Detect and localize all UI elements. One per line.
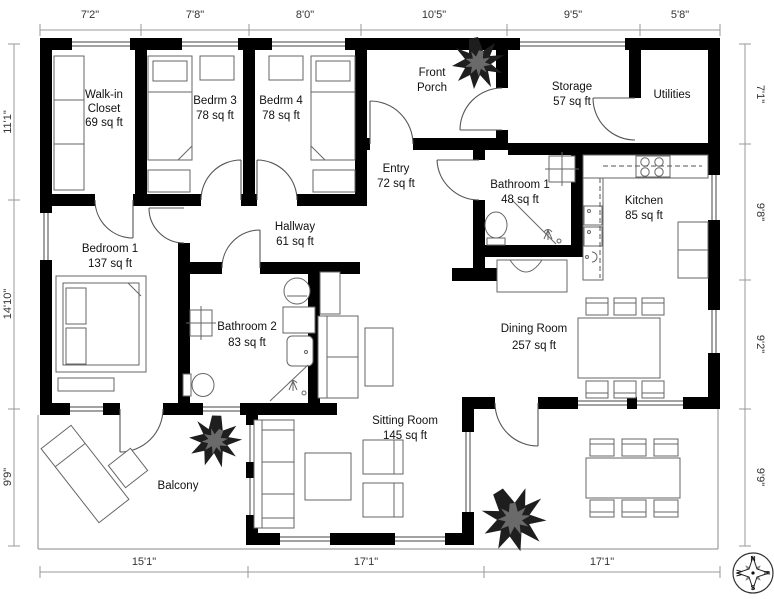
door-terrace bbox=[495, 403, 538, 446]
window bbox=[578, 397, 627, 409]
pillow bbox=[66, 328, 86, 364]
bedroom1-furniture bbox=[56, 276, 146, 391]
nightstand bbox=[269, 56, 303, 80]
wall-storage-bottom bbox=[508, 143, 720, 155]
label-bathroom1: Bathroom 1 bbox=[490, 179, 549, 191]
chair bbox=[590, 439, 614, 456]
wall-band-1 bbox=[40, 194, 95, 206]
wall-dining-corner-stub bbox=[473, 257, 485, 268]
dim-top-4: 10'5" bbox=[422, 9, 446, 21]
wall-storage-utilities bbox=[629, 50, 641, 98]
label-dining-room: Dining Room bbox=[501, 323, 567, 335]
shower-icon bbox=[289, 381, 297, 392]
svg-text:Closet: Closet bbox=[88, 103, 121, 115]
dining-table bbox=[578, 318, 660, 378]
label-walk-in-closet-area: 69 sq ft bbox=[85, 117, 124, 129]
counter bbox=[283, 307, 315, 333]
toilet-bowl bbox=[485, 212, 507, 238]
dining-furniture bbox=[318, 272, 664, 398]
dim-top-3: 8'0" bbox=[296, 9, 314, 21]
window bbox=[203, 403, 240, 415]
sink bbox=[584, 227, 602, 246]
wall-dining-corner bbox=[452, 268, 500, 281]
compass-rose: N E S W bbox=[733, 553, 773, 593]
wall-bed4-right bbox=[355, 50, 367, 206]
window bbox=[395, 533, 445, 545]
chair bbox=[622, 439, 646, 456]
sink bbox=[287, 336, 313, 366]
floor-plan-drawing: 7'2" 7'8" 8'0" 10'5" 9'5" 5'8" 11'1" 14'… bbox=[0, 0, 774, 599]
fridge bbox=[678, 222, 708, 250]
dim-left-3: 9'9" bbox=[2, 468, 14, 486]
outdoor-table bbox=[586, 458, 680, 498]
chair bbox=[614, 298, 636, 315]
plant-icon bbox=[472, 477, 555, 560]
door-bathroom1 bbox=[437, 160, 479, 200]
wall-band-2 bbox=[133, 194, 201, 206]
dim-right-4: 9'9" bbox=[754, 468, 766, 486]
balcony-furniture bbox=[41, 425, 148, 522]
label-bedroom1-area: 137 sq ft bbox=[88, 258, 133, 270]
floor-plan-page: 7'2" 7'8" 8'0" 10'5" 9'5" 5'8" 11'1" 14'… bbox=[0, 0, 774, 599]
dim-right-1: 7'1" bbox=[754, 85, 766, 103]
door-bedrm4 bbox=[257, 160, 297, 200]
toilet-tank bbox=[487, 238, 505, 245]
door-front bbox=[370, 101, 413, 144]
window bbox=[70, 403, 103, 415]
compass-west: W bbox=[737, 569, 744, 576]
dim-top-2: 7'8" bbox=[186, 9, 204, 21]
window bbox=[72, 38, 130, 50]
label-walk-in-closet: Walk-in bbox=[85, 89, 123, 101]
terrace-furniture bbox=[586, 439, 680, 517]
label-entry: Entry bbox=[383, 163, 410, 175]
wall-bed3-bed4 bbox=[243, 50, 255, 194]
dim-bottom-1: 15'1" bbox=[132, 556, 156, 568]
window bbox=[462, 432, 474, 512]
bench bbox=[58, 378, 114, 391]
closet-shelves bbox=[54, 56, 84, 190]
chair bbox=[642, 381, 664, 398]
window bbox=[708, 310, 720, 353]
window bbox=[520, 38, 625, 50]
label-entry-area: 72 sq ft bbox=[377, 178, 416, 190]
label-hallway: Hallway bbox=[275, 221, 316, 233]
window bbox=[272, 38, 345, 50]
door-balcony bbox=[120, 409, 163, 452]
label-front-porch: Front bbox=[419, 67, 447, 79]
compass-south: S bbox=[751, 585, 756, 592]
compass-east: E bbox=[763, 571, 770, 576]
dim-top-5: 9'5" bbox=[564, 9, 582, 21]
window bbox=[40, 213, 52, 260]
ruler-right: 7'1" 9'8" 9'2" 9'9" bbox=[739, 44, 766, 546]
toilet-bowl bbox=[192, 374, 214, 397]
chair bbox=[654, 439, 678, 456]
window bbox=[280, 533, 330, 545]
compass-north: N bbox=[750, 556, 755, 563]
label-bedrm3: Bedrm 3 bbox=[193, 95, 236, 107]
sitting-room-furniture bbox=[254, 420, 403, 528]
door-utilities bbox=[593, 98, 635, 140]
window bbox=[637, 397, 683, 409]
chair bbox=[642, 298, 664, 315]
dim-left-1: 11'1" bbox=[2, 110, 14, 134]
label-storage-area: 57 sq ft bbox=[553, 96, 592, 108]
tv-stand bbox=[365, 328, 393, 386]
ruler-left: 11'1" 14'10" 9'9" bbox=[2, 44, 20, 546]
armchair bbox=[363, 483, 403, 517]
label-hallway-area: 61 sq ft bbox=[276, 236, 315, 248]
label-bathroom2-area: 83 sq ft bbox=[228, 337, 267, 349]
plant-icon bbox=[183, 409, 246, 472]
dim-bottom-2: 17'1" bbox=[354, 556, 378, 568]
side-cabinet bbox=[320, 272, 340, 314]
ruler-top: 7'2" 7'8" 8'0" 10'5" 9'5" 5'8" bbox=[40, 9, 720, 36]
pillow bbox=[316, 61, 350, 81]
label-kitchen: Kitchen bbox=[625, 195, 663, 207]
label-bedrm3-area: 78 sq ft bbox=[196, 110, 235, 122]
armchair bbox=[363, 440, 403, 474]
label-kitchen-area: 85 sq ft bbox=[625, 210, 664, 222]
dim-bottom-3: 17'1" bbox=[590, 556, 614, 568]
label-utilities: Utilities bbox=[653, 89, 690, 101]
cabinet bbox=[678, 250, 708, 278]
pillow bbox=[66, 288, 86, 324]
wall-outer-right bbox=[708, 38, 720, 409]
wall-bath1-bottom bbox=[473, 245, 583, 257]
dim-right-3: 9'2" bbox=[754, 335, 766, 353]
coffee-table bbox=[305, 453, 351, 500]
dim-left-2: 14'10" bbox=[2, 289, 14, 320]
label-bedroom1: Bedroom 1 bbox=[82, 243, 138, 255]
label-bathroom1-area: 48 sq ft bbox=[501, 194, 540, 206]
dim-right-2: 9'8" bbox=[754, 203, 766, 221]
chair bbox=[654, 500, 678, 517]
desk-nook bbox=[497, 260, 567, 292]
chair bbox=[586, 298, 608, 315]
label-bathroom2: Bathroom 2 bbox=[217, 321, 276, 333]
chair bbox=[590, 500, 614, 517]
door-bedroom1 bbox=[149, 208, 184, 243]
chair bbox=[622, 500, 646, 517]
label-bedrm4: Bedrm 4 bbox=[259, 95, 303, 107]
label-storage: Storage bbox=[552, 81, 592, 93]
dim-top-1: 7'2" bbox=[81, 9, 99, 21]
label-dining-room-area: 257 sq ft bbox=[512, 340, 557, 352]
bedrm4-furniture bbox=[269, 56, 355, 192]
sink bbox=[584, 206, 602, 225]
chair bbox=[614, 381, 636, 398]
ruler-bottom: 15'1" 17'1" 17'1" bbox=[40, 556, 720, 578]
svg-text:Porch: Porch bbox=[417, 82, 447, 94]
window bbox=[182, 38, 238, 50]
round-basin bbox=[284, 278, 310, 304]
dim-top-6: 5'8" bbox=[671, 9, 689, 21]
label-sitting-room-area: 145 sq ft bbox=[383, 430, 428, 442]
door-storage-porch bbox=[460, 88, 502, 130]
door-closet bbox=[95, 200, 133, 238]
window bbox=[708, 175, 720, 220]
dresser bbox=[148, 170, 190, 192]
door-bedrm3 bbox=[201, 160, 241, 200]
sofa bbox=[254, 420, 294, 528]
label-balcony: Balcony bbox=[158, 480, 199, 492]
toilet-tank bbox=[183, 374, 191, 396]
nightstand bbox=[200, 56, 234, 80]
bedrm3-furniture bbox=[148, 56, 234, 192]
wall-band-3 bbox=[241, 194, 257, 206]
dresser bbox=[313, 170, 355, 192]
pillow bbox=[153, 61, 187, 81]
chair bbox=[586, 381, 608, 398]
label-sitting-room: Sitting Room bbox=[372, 415, 438, 427]
label-bedrm4-area: 78 sq ft bbox=[262, 110, 301, 122]
wall-closet-bed3 bbox=[135, 50, 147, 194]
